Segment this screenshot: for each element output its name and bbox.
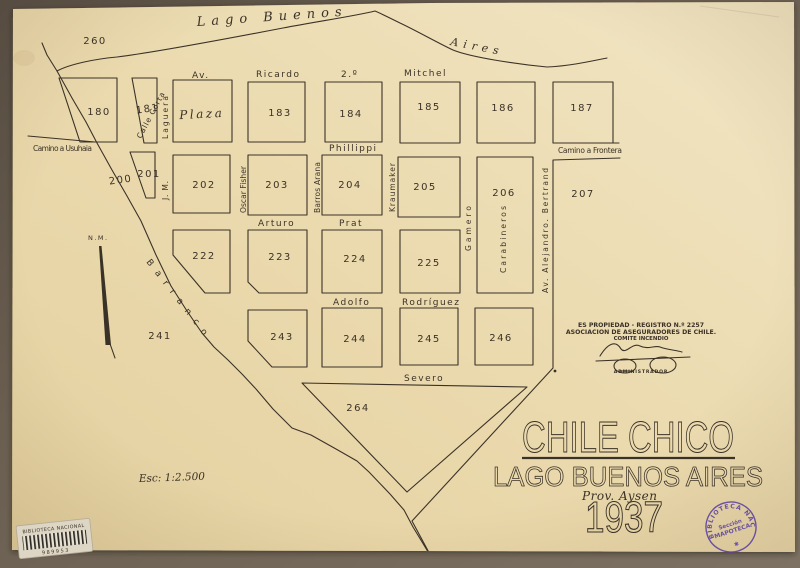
street-label-av-bertrand: Av. Alejandro. Bertrand bbox=[541, 167, 550, 293]
street-label-av: Av. bbox=[192, 71, 210, 81]
plaza-label: Plaza bbox=[178, 106, 225, 122]
block-206-label: 206 bbox=[492, 188, 516, 199]
registry-line3: COMITE INCENDIO bbox=[614, 336, 669, 342]
survey-mark bbox=[554, 370, 557, 373]
street-label-barros-arana: Barros Arana bbox=[313, 161, 322, 213]
block-183-label: 183 bbox=[268, 108, 292, 119]
scale-label: Esc: 1:2.500 bbox=[138, 471, 206, 485]
registry-line2: ASOCIACION DE ASEGURADORES DE CHILE. bbox=[566, 329, 716, 336]
block-241-label: 241 bbox=[148, 331, 172, 342]
registry-line1: ES PROPIEDAD - REGISTRO N.º 2257 bbox=[578, 322, 704, 329]
block-223-label: 223 bbox=[268, 252, 292, 263]
block-180-label: 180 bbox=[87, 107, 111, 118]
block-205-label: 205 bbox=[413, 182, 437, 193]
block-207-label: 207 bbox=[571, 189, 595, 200]
block-203-label: 203 bbox=[265, 180, 289, 191]
street-label-ricardo: Ricardo bbox=[256, 70, 300, 80]
street-label-kraumaker: Kraumaker bbox=[388, 162, 397, 212]
block-204-label: 204 bbox=[338, 180, 362, 191]
street-label-prat: Prat bbox=[339, 219, 363, 229]
block-224-label: 224 bbox=[343, 254, 367, 265]
road-label-frontera: Camino a Frontera bbox=[558, 146, 623, 155]
map-photo: Lago Buenos Aires 260 Av. Ricardo 2.º Mi… bbox=[0, 0, 800, 568]
registry-signer: ADMINISTRADOR bbox=[614, 369, 668, 375]
block-225-label: 225 bbox=[417, 258, 441, 269]
street-label-segundo: 2.º bbox=[341, 70, 358, 80]
north-marker-label: N.M. bbox=[88, 234, 109, 242]
map-year: 1937 bbox=[585, 493, 663, 542]
street-label-arturo: Arturo bbox=[258, 219, 295, 229]
block-245-label: 245 bbox=[417, 334, 441, 345]
block-202-label: 202 bbox=[192, 180, 216, 191]
block-187-label: 187 bbox=[570, 103, 594, 114]
block-201-label: 201 bbox=[137, 169, 161, 180]
street-label-jm: J. M. bbox=[161, 180, 170, 201]
block-246-label: 246 bbox=[489, 333, 513, 344]
map-canvas: Lago Buenos Aires 260 Av. Ricardo 2.º Mi… bbox=[0, 0, 800, 568]
road-label-usuhaia: Camino a Usuhaia bbox=[33, 144, 93, 153]
street-label-phillippi: Phillippi bbox=[329, 144, 378, 154]
block-222-label: 222 bbox=[192, 251, 216, 262]
street-label-oscar-fisher: Oscar Fisher bbox=[239, 165, 248, 213]
street-label-adolfo: Adolfo bbox=[333, 298, 370, 308]
label-carabineros: Carabineros bbox=[499, 205, 508, 273]
block-186-label: 186 bbox=[491, 103, 515, 114]
street-label-severo: Severo bbox=[404, 374, 444, 384]
block-244-label: 244 bbox=[343, 334, 367, 345]
block-184-label: 184 bbox=[339, 109, 363, 120]
block-243-label: 243 bbox=[270, 332, 294, 343]
street-label-rodriguez: Rodríguez bbox=[402, 298, 460, 308]
block-264-label: 264 bbox=[346, 403, 370, 414]
map-subtitle: LAGO BUENOS AIRES bbox=[493, 461, 763, 492]
map-title: CHILE CHICO bbox=[522, 413, 734, 462]
point-260-label: 260 bbox=[83, 36, 107, 47]
street-label-mitchel: Mitchel bbox=[404, 69, 447, 79]
paper-stain bbox=[13, 50, 35, 66]
block-185-label: 185 bbox=[417, 102, 441, 113]
